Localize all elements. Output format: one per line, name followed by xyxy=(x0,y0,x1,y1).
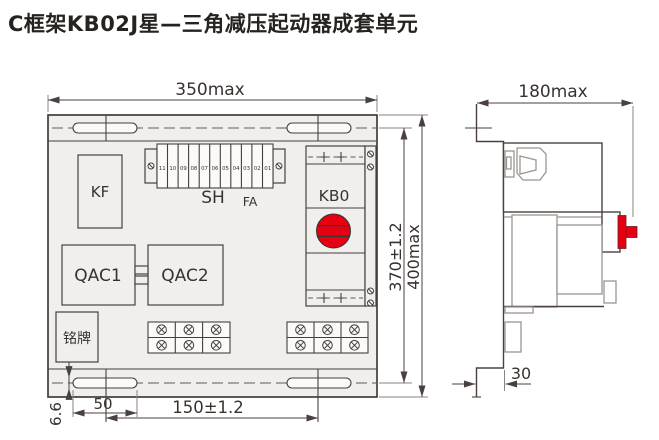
lower-block xyxy=(505,322,521,352)
pushbutton-knob[interactable] xyxy=(626,227,637,238)
terminal-number: 08 xyxy=(190,166,197,172)
pushbutton-collar[interactable] xyxy=(618,216,626,249)
lower-component xyxy=(504,215,616,352)
screw-icon xyxy=(323,325,333,335)
terminal-number: 04 xyxy=(233,166,240,172)
upper-component xyxy=(504,143,603,217)
screw-icon xyxy=(296,325,306,335)
dimension-heights: 370±1.2 400max xyxy=(379,115,428,397)
side-pushbutton xyxy=(602,212,637,252)
terminal-number: 11 xyxy=(159,166,166,172)
screw-icon xyxy=(157,341,167,351)
technical-drawing: KF 11 10 09 08 07 06 05 04 xyxy=(0,0,659,440)
nameplate-label: 铭牌 xyxy=(63,330,91,347)
qac2-label: QAC2 xyxy=(161,266,208,286)
terminal-number: 09 xyxy=(180,166,187,172)
terminal-number: 07 xyxy=(201,166,208,172)
kb0-label: KB0 xyxy=(319,187,350,205)
back-panel-profile xyxy=(477,104,504,397)
dimension-width: 350max xyxy=(48,80,377,112)
dim-slot-width-text: 6.6 xyxy=(47,402,65,426)
dim-width-text: 350max xyxy=(175,80,245,100)
screw-icon xyxy=(323,341,333,351)
screw-icon xyxy=(184,325,194,335)
screw-icon xyxy=(148,163,154,169)
pushbutton-face[interactable] xyxy=(317,214,351,248)
interlock-link xyxy=(135,276,148,284)
screw-icon xyxy=(157,325,167,335)
kf-relay: KF xyxy=(78,155,122,228)
screw-icon xyxy=(350,341,360,351)
bracket-detail xyxy=(507,157,512,169)
terminal-number: 06 xyxy=(212,166,219,172)
dim-flange-offset-text: 30 xyxy=(511,364,531,383)
kf-label: KF xyxy=(91,183,109,201)
dim-depth-text: 180max xyxy=(518,82,588,102)
dim-height-mount-text: 370±1.2 xyxy=(386,222,405,291)
terminal-number: 02 xyxy=(254,166,261,172)
dim-height-overall-text: 400max xyxy=(404,224,423,289)
body-step xyxy=(604,281,616,303)
fa-label: FA xyxy=(243,194,258,209)
screw-icon xyxy=(296,341,306,351)
screw-icon xyxy=(276,163,282,169)
terminal-number: 03 xyxy=(243,166,250,172)
body-section xyxy=(557,225,602,294)
body-foot xyxy=(505,307,533,313)
mounting-slot xyxy=(73,378,137,388)
sh-label: SH xyxy=(201,188,225,208)
drawing-page: C框架KB02J星—三角减压起动器成套单元 xyxy=(0,0,659,440)
dim-slot-length-text: 50 xyxy=(93,395,112,413)
terminal-number: 05 xyxy=(222,166,229,172)
kb0-breaker: KB0 xyxy=(306,146,376,306)
screw-icon xyxy=(211,341,221,351)
terminal-number: 01 xyxy=(264,166,271,172)
screw-icon xyxy=(368,300,374,306)
terminal-block-right xyxy=(287,322,368,353)
button-housing xyxy=(602,212,620,252)
screw-icon xyxy=(368,164,374,170)
qac1-label: QAC1 xyxy=(74,266,121,286)
side-view: 180max 30 xyxy=(452,82,637,397)
body-section xyxy=(512,215,557,307)
dim-slot-spacing-text: 150±1.2 xyxy=(172,398,244,417)
terminal-block-left xyxy=(148,322,230,353)
mounting-slot xyxy=(287,123,351,133)
screw-icon xyxy=(211,325,221,335)
screw-icon xyxy=(184,341,194,351)
screw-icon xyxy=(350,325,360,335)
terminal-cell-numbers: 11 10 09 08 07 06 05 04 03 02 01 xyxy=(159,166,271,172)
terminal-number: 10 xyxy=(169,166,176,172)
mounting-slot xyxy=(73,123,137,133)
interlock-link xyxy=(135,266,148,274)
mounting-slot xyxy=(287,378,351,388)
screw-icon xyxy=(368,151,374,157)
red-pushbutton[interactable] xyxy=(317,214,351,248)
front-view: KF 11 10 09 08 07 06 05 04 xyxy=(47,80,428,426)
nameplate: 铭牌 xyxy=(56,312,98,362)
screw-icon xyxy=(368,288,374,294)
